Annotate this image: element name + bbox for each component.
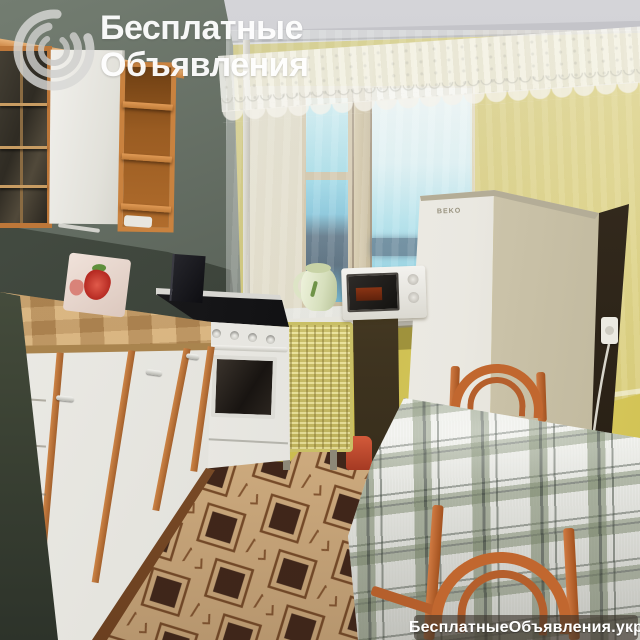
listing-photo: BEKO: [0, 0, 640, 640]
microwave-door: [346, 272, 399, 312]
watermark-footer-text: БесплатныеОбъявления.укр: [409, 619, 640, 637]
microwave-dial: [407, 274, 418, 285]
dishes-on-shelf: [124, 215, 153, 228]
watermark-logo-text: Бесплатные Объявления: [100, 10, 308, 84]
shelf-board: [121, 203, 171, 212]
strawberry: [81, 267, 114, 303]
shelf-board: [122, 153, 172, 162]
kettle-lid: [305, 263, 331, 273]
concentric-arcs-icon: [8, 4, 100, 96]
stove-knob: [266, 335, 275, 344]
watermark-footer: БесплатныеОбъявления.укр: [414, 615, 638, 640]
stove-knob: [212, 329, 221, 338]
electric-kettle: [295, 261, 341, 313]
wall-mounted-tv: [169, 254, 205, 303]
microwave: [341, 266, 427, 321]
microwave-display: [356, 287, 382, 301]
cabinet-shelf: [0, 146, 47, 149]
oven-window: [211, 355, 277, 419]
radiator-leg: [330, 450, 337, 470]
watermark-logo: [8, 4, 100, 96]
shelf-board: [123, 101, 173, 110]
watermark-logo-line1: Бесплатные: [100, 10, 308, 47]
small-strawberry: [69, 279, 85, 297]
microwave-dial: [408, 292, 419, 303]
fridge-brand-label: BEKO: [437, 208, 461, 216]
stove-knob: [230, 331, 239, 340]
cabinet-shelf: [0, 185, 47, 188]
cabinet-shelf: [0, 103, 47, 106]
strawberry-board: [63, 252, 132, 317]
kettle-body: [301, 267, 337, 311]
watermark-logo-line2: Объявления: [100, 47, 308, 84]
stove-knob: [248, 333, 257, 342]
open-shelf-unit: [118, 62, 177, 233]
